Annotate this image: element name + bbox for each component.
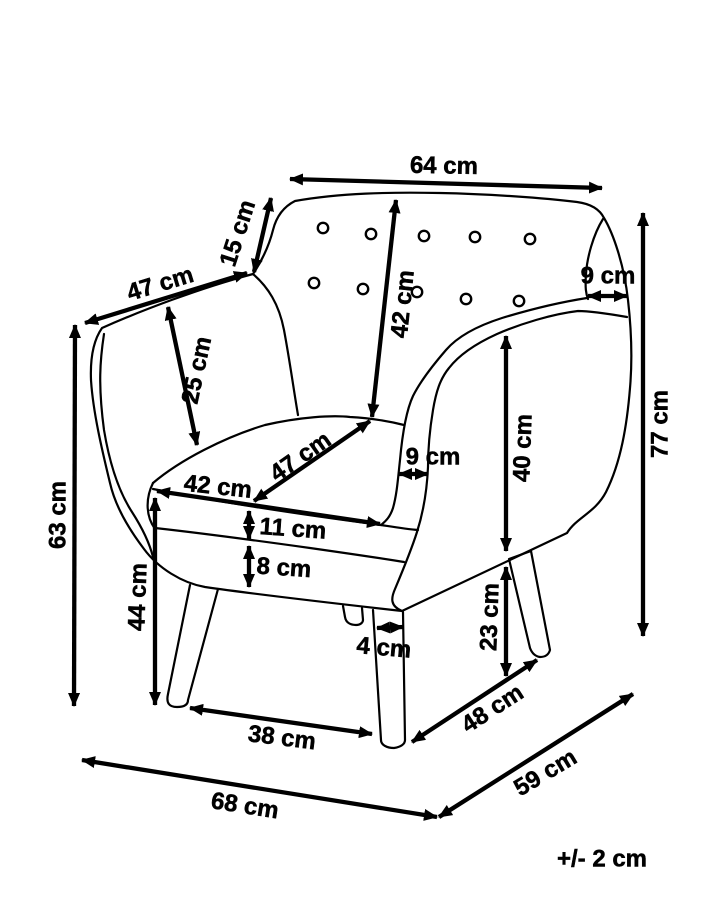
- svg-text:40 cm: 40 cm: [508, 414, 537, 483]
- svg-text:23 cm: 23 cm: [475, 583, 504, 652]
- svg-text:44 cm: 44 cm: [123, 563, 152, 632]
- svg-text:9 cm: 9 cm: [581, 262, 636, 289]
- svg-text:9 cm: 9 cm: [406, 443, 461, 470]
- svg-text:63 cm: 63 cm: [44, 481, 71, 549]
- svg-text:11 cm: 11 cm: [259, 513, 327, 545]
- svg-text:+/- 2 cm: +/- 2 cm: [557, 845, 647, 872]
- svg-text:77 cm: 77 cm: [646, 390, 673, 458]
- svg-text:8 cm: 8 cm: [256, 553, 312, 584]
- svg-text:4 cm: 4 cm: [355, 632, 412, 664]
- svg-text:64 cm: 64 cm: [410, 152, 479, 180]
